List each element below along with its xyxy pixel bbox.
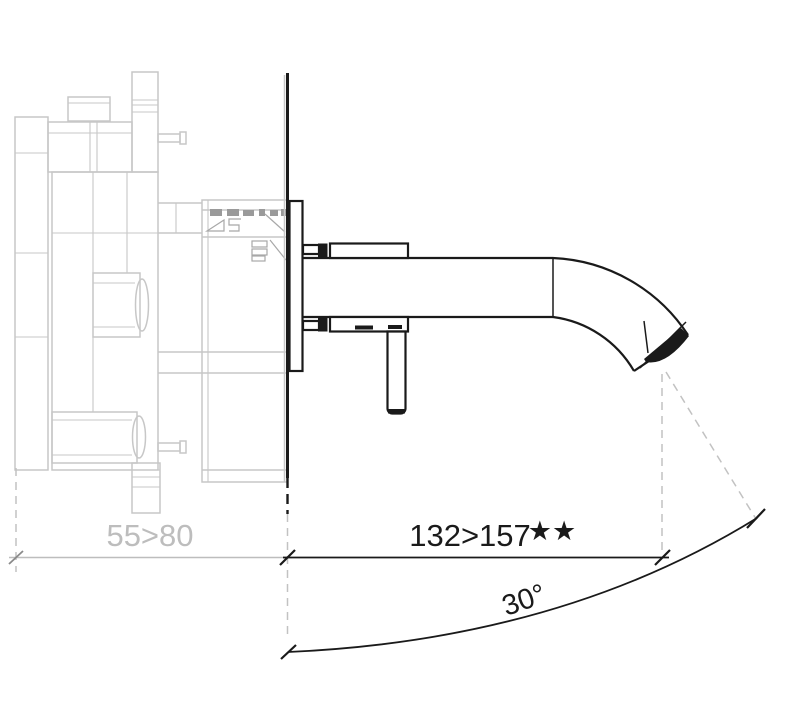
housing-box [202,200,287,482]
tip-angle-dashed [666,372,756,519]
supply-pipe-top [132,72,158,172]
lever-handle [388,332,406,414]
valve-body [52,172,158,470]
faucet-diagram-svg: 55>80 132>157 ★★ 30° [0,0,800,708]
stub-top [158,134,180,142]
housing-label-marks [207,209,287,261]
stub-low [158,443,180,451]
body-sleeve-top [330,244,408,259]
rough-in-housing-box [158,75,287,482]
spout-curve-inner [553,317,634,371]
rough-in-depth-label: 55>80 [106,518,193,553]
escutcheon-plate [290,201,303,371]
spout-curve-outer [553,258,688,335]
dimension-annotations: 55>80 132>157 ★★ 30° [9,372,765,659]
faucet-visible [290,201,690,414]
drawing-canvas: 55>80 132>157 ★★ 30° [0,0,800,708]
spout-projection-label: 132>157 [409,518,531,553]
top-cap [68,97,110,121]
back-plate [15,117,48,470]
spray-angle-label: 30° [498,578,550,623]
spout-projection-footnote-marker: ★★ [528,516,576,547]
aerator-outlet [644,328,689,362]
concealed-valve-body [15,72,186,513]
